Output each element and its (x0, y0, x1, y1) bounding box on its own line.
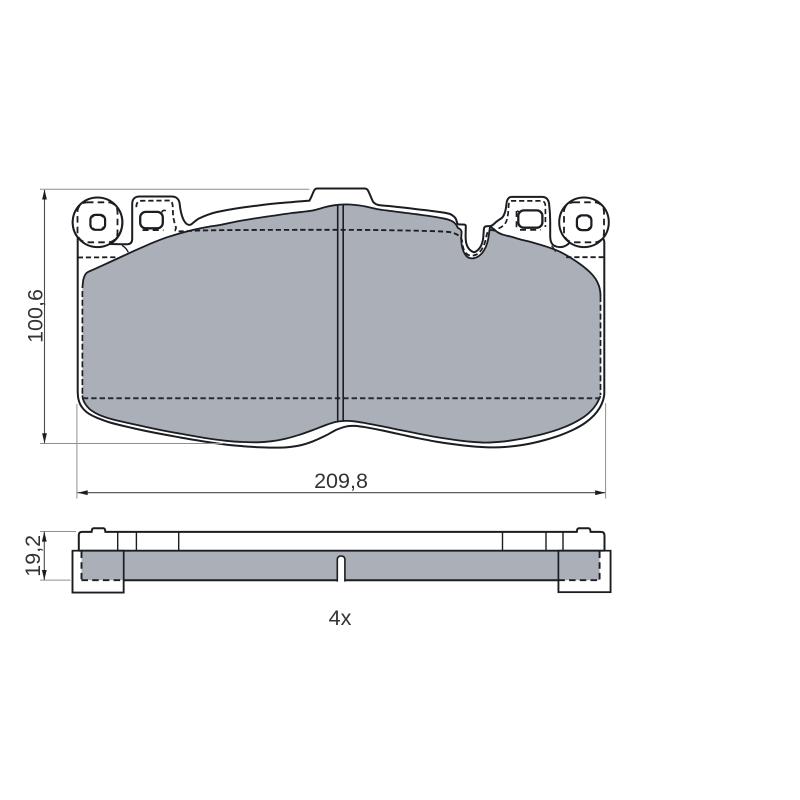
svg-text:4x: 4x (329, 606, 352, 630)
svg-text:19,2: 19,2 (21, 535, 45, 577)
svg-text:209,8: 209,8 (314, 469, 368, 493)
svg-text:100,6: 100,6 (23, 289, 47, 343)
